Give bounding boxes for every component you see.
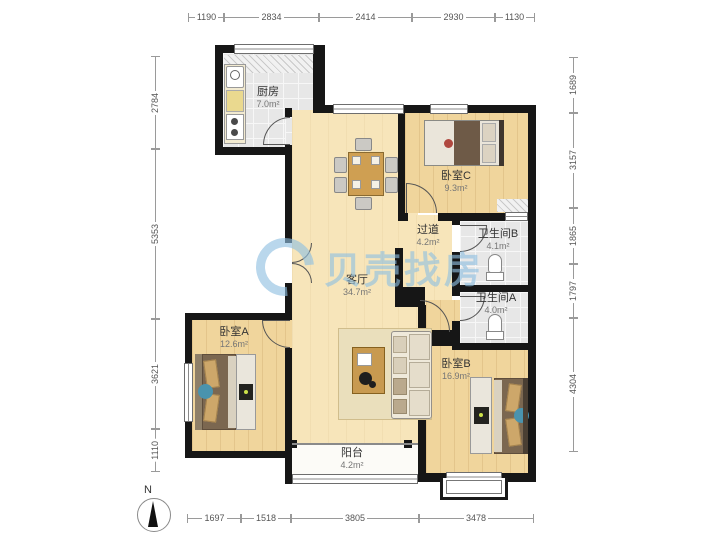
wall: [285, 145, 292, 243]
room-area: 34.7m²: [343, 287, 371, 298]
compass-north-label: N: [144, 484, 152, 496]
wall: [185, 313, 292, 320]
dining-chair: [355, 138, 372, 151]
dim-left-3: 3621: [151, 318, 160, 430]
bedroom-c-decor: [444, 139, 453, 148]
kitchen-sink-basin: [230, 70, 240, 80]
wall: [215, 45, 223, 155]
dim-bottom-4: 3478: [418, 514, 534, 523]
stove-burner: [231, 118, 238, 125]
wall: [438, 213, 505, 221]
room-area: 16.9m²: [441, 371, 470, 382]
bedroom-a-sheet: [228, 356, 236, 428]
dim-right-2: 3157: [569, 112, 578, 209]
room-area: 4.2m²: [340, 460, 363, 471]
sofa-pillow: [393, 357, 407, 374]
room-label-bathroom-b: 卫生间B 4.1m²: [478, 228, 518, 252]
wall: [452, 252, 460, 287]
room-name: 阳台: [340, 447, 363, 460]
dim-bottom-3: 3805: [290, 514, 420, 523]
room-label-bedroom-c: 卧室C 9.3m²: [441, 170, 471, 194]
room-area: 4.2m²: [416, 237, 439, 248]
dim-right-1: 1689: [569, 57, 578, 114]
wall: [452, 343, 536, 350]
kitchen-prep-cabinet: [226, 90, 244, 112]
room-name: 客厅: [343, 274, 371, 287]
place-setting: [371, 180, 380, 189]
dim-left-4: 1110: [151, 428, 160, 472]
room-label-hallway: 过道 4.2m²: [416, 224, 439, 248]
sofa-cushion: [409, 334, 430, 360]
room-name: 过道: [416, 224, 439, 237]
place-setting: [371, 156, 380, 165]
bay-window: [440, 478, 508, 500]
room-area: 12.6m²: [219, 339, 248, 350]
dim-right-5: 4304: [569, 317, 578, 452]
bedroom-c-blanket: [454, 121, 480, 165]
wall: [395, 248, 403, 290]
bedroom-c-headboard: [499, 120, 504, 166]
place-setting: [352, 156, 361, 165]
bathroom-b-toilet-tank: [486, 272, 504, 281]
balcony-window: [292, 474, 418, 484]
wall: [528, 105, 536, 482]
room-area: 7.0m²: [256, 99, 279, 110]
dim-top-5: 1130: [494, 13, 535, 22]
sofa-cushion: [409, 362, 430, 388]
wall: [398, 213, 408, 221]
bedroom-b-sheet: [494, 380, 502, 452]
dim-right-4: 1797: [569, 263, 578, 319]
wall: [398, 108, 405, 215]
bedroom-b-tv-light: [479, 413, 483, 417]
place-setting: [352, 180, 361, 189]
bedroom-c-pillow: [482, 144, 496, 163]
floor-plan: 厨房 7.0m² 卧室C 9.3m² 过道 4.2m² 卫生间B 4.1m² 卫…: [0, 0, 720, 540]
equipment-platform-hatch: [497, 199, 528, 212]
room-area: 4.1m²: [478, 241, 518, 252]
dining-chair: [355, 197, 372, 210]
room-name: 厨房: [256, 86, 279, 99]
bedroom-c-window: [430, 104, 468, 114]
wall: [185, 313, 192, 365]
coffee-table-cup: [369, 381, 376, 388]
room-name: 卫生间A: [476, 292, 516, 305]
room-name: 卧室A: [219, 326, 248, 339]
wall: [404, 105, 430, 113]
dining-chair: [334, 177, 347, 193]
room-area: 9.3m²: [441, 183, 471, 194]
room-name: 卧室B: [441, 358, 470, 371]
sofa-pillow: [393, 399, 407, 414]
compass-needle-icon: [148, 501, 158, 527]
room-name: 卧室C: [441, 170, 471, 183]
sofa-pillow: [393, 336, 407, 353]
wall: [313, 105, 333, 113]
bathroom-b-window: [505, 212, 528, 221]
dim-bottom-2: 1518: [240, 514, 292, 523]
wall: [313, 45, 325, 113]
coffee-table-book: [357, 353, 372, 366]
dim-top-2: 2834: [223, 13, 320, 22]
room-label-bedroom-a: 卧室A 12.6m²: [219, 326, 248, 350]
bedroom-b-headboard: [523, 378, 528, 454]
wall: [452, 292, 460, 296]
dim-top-4: 2930: [411, 13, 496, 22]
dining-chair: [334, 157, 347, 173]
room-label-bedroom-b: 卧室B 16.9m²: [441, 358, 470, 382]
stove-burner: [231, 129, 238, 136]
wall: [468, 105, 535, 113]
balcony-sliding-door: [292, 443, 418, 445]
wall: [452, 221, 460, 225]
bedroom-a-decor-fan: [198, 384, 213, 399]
room-label-kitchen: 厨房 7.0m²: [256, 86, 279, 110]
bedroom-c-pillow: [482, 123, 496, 142]
room-label-balcony: 阳台 4.2m²: [340, 447, 363, 471]
wall: [285, 348, 292, 451]
wall: [452, 285, 536, 292]
kitchen-window: [234, 44, 314, 54]
room-area: 4.0m²: [476, 305, 516, 316]
room-label-living-room: 客厅 34.7m²: [343, 274, 371, 298]
dim-top-3: 2414: [318, 13, 413, 22]
wall: [215, 147, 292, 155]
dining-chair: [385, 157, 398, 173]
bedroom-a-tv-light: [244, 390, 248, 394]
wall: [285, 108, 292, 117]
dining-window: [333, 104, 404, 114]
room-name: 卫生间B: [478, 228, 518, 241]
bathroom-a-toilet-tank: [486, 331, 504, 340]
sofa-cushion: [409, 390, 430, 416]
room-label-bathroom-a: 卫生间A 4.0m²: [476, 292, 516, 316]
dim-left-2: 5353: [151, 148, 160, 320]
bathroom-b-toilet: [488, 254, 502, 273]
dim-left-1: 2784: [151, 56, 160, 150]
wall: [185, 451, 292, 458]
sofa-pillow: [393, 378, 407, 395]
bedroom-a-window: [184, 363, 193, 422]
dining-chair: [385, 177, 398, 193]
dim-right-3: 1865: [569, 207, 578, 265]
bay-window-inner: [446, 480, 502, 494]
dim-bottom-1: 1697: [187, 514, 242, 523]
dim-top-1: 1190: [188, 13, 225, 22]
wall: [285, 443, 292, 484]
